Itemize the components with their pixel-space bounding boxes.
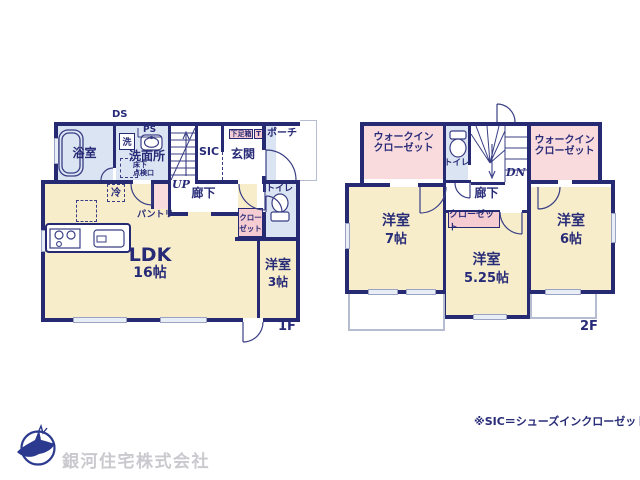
bath-label: 浴室 [56, 147, 113, 160]
ds-label: DS [112, 109, 128, 120]
floor-plan-page: 洗 下足箱 T クロー ゼット 収納 クローゼット [0, 0, 640, 480]
genkan-label: 玄関 [224, 148, 262, 161]
bedroom3-size-label: 3帖 [260, 276, 296, 289]
storage-box: 収納 [471, 165, 501, 180]
pantry-room [154, 184, 168, 209]
floor1-label: 1F [278, 320, 296, 335]
toilet-2f-label: トイレ [444, 159, 470, 169]
closet-1f-label-2: ゼット [239, 223, 262, 234]
shoe-box-label: 下足箱 [231, 129, 252, 139]
washer-box: 洗 [119, 133, 135, 150]
company-logo [13, 424, 61, 472]
wic-left-label-1: ウォークイン [364, 132, 443, 143]
ldk-label: LDK [100, 245, 200, 266]
fridge-label: 冷 [111, 188, 121, 199]
wall [471, 182, 505, 185]
wall [235, 237, 300, 241]
window [160, 317, 207, 323]
wall [360, 122, 602, 126]
stairs-1f [171, 126, 195, 180]
wic-right-label-1: ウォークイン [531, 135, 598, 146]
wall [263, 212, 266, 237]
window [473, 314, 507, 320]
wall [531, 180, 558, 184]
toilet-1f-label: トイレ [266, 184, 293, 194]
wall [151, 180, 154, 209]
t-box-label: T [256, 130, 261, 138]
shoe-box: 下足箱 [229, 129, 253, 139]
bedroom525-label: 洋室 [446, 253, 527, 269]
bedroom7-label: 洋室 [349, 214, 443, 230]
hall-2f-label: 廊下 [443, 187, 530, 200]
bedroom7-size-label: 7帖 [349, 233, 443, 248]
pantry-label: パントリー [137, 210, 182, 220]
floor2-label: 2F [580, 320, 598, 335]
ldk-size-label: 16帖 [100, 266, 200, 282]
porch-label: ポーチ [267, 128, 297, 139]
wall [443, 180, 471, 183]
sic-footnote: ※SIC＝シューズインクローゼット [474, 416, 640, 428]
wall [443, 126, 446, 183]
wall [151, 180, 171, 184]
wall [418, 183, 443, 187]
wall [211, 212, 238, 216]
bedroom6-size-label: 6帖 [531, 233, 611, 248]
hall-1f-label: 廊下 [171, 187, 236, 200]
wall [41, 318, 243, 322]
wic-left-label-2: クローゼット [364, 143, 443, 154]
wic-right-label: ウォークイン クローゼット [531, 135, 598, 157]
sic-label: SIC [196, 146, 222, 158]
wall [296, 184, 300, 322]
toilet-room-2f [446, 126, 468, 180]
closet-2f-label: クローゼット [449, 207, 499, 233]
wall [572, 180, 615, 184]
wic-right-label-2: クローゼット [531, 146, 598, 157]
wall [598, 122, 602, 180]
partition-dashed [222, 152, 223, 180]
closet-1f: クロー ゼット [238, 208, 263, 237]
bedroom525-size-label: 5.25帖 [446, 272, 527, 287]
window [611, 213, 616, 243]
hatch-label: 床下 点検口 [133, 162, 154, 178]
t-box: T [254, 129, 263, 139]
dn-label: DN [506, 167, 526, 179]
closet-2f: クローゼット [448, 211, 500, 228]
window [73, 317, 127, 323]
wall [345, 183, 390, 187]
washer-label: 洗 [122, 135, 131, 148]
wall [522, 210, 530, 213]
porch-outline [300, 120, 317, 181]
wall [195, 180, 238, 184]
company-name: 銀河住宅株式会社 [62, 447, 210, 472]
balcony-left [348, 294, 445, 331]
bedroom6-label: 洋室 [531, 214, 611, 230]
storage-label: 収納 [478, 167, 494, 178]
bedroom3-label: 洋室 [260, 259, 296, 274]
wic-left-label: ウォークイン クローゼット [364, 132, 443, 154]
ps-label: PS [143, 125, 156, 135]
dashed-square [76, 200, 97, 222]
window [41, 230, 46, 252]
closet-1f-label-1: クロー [239, 212, 262, 223]
wall [113, 126, 116, 168]
balcony-right [530, 294, 597, 319]
hatch-label-2: 点検口 [133, 170, 154, 178]
